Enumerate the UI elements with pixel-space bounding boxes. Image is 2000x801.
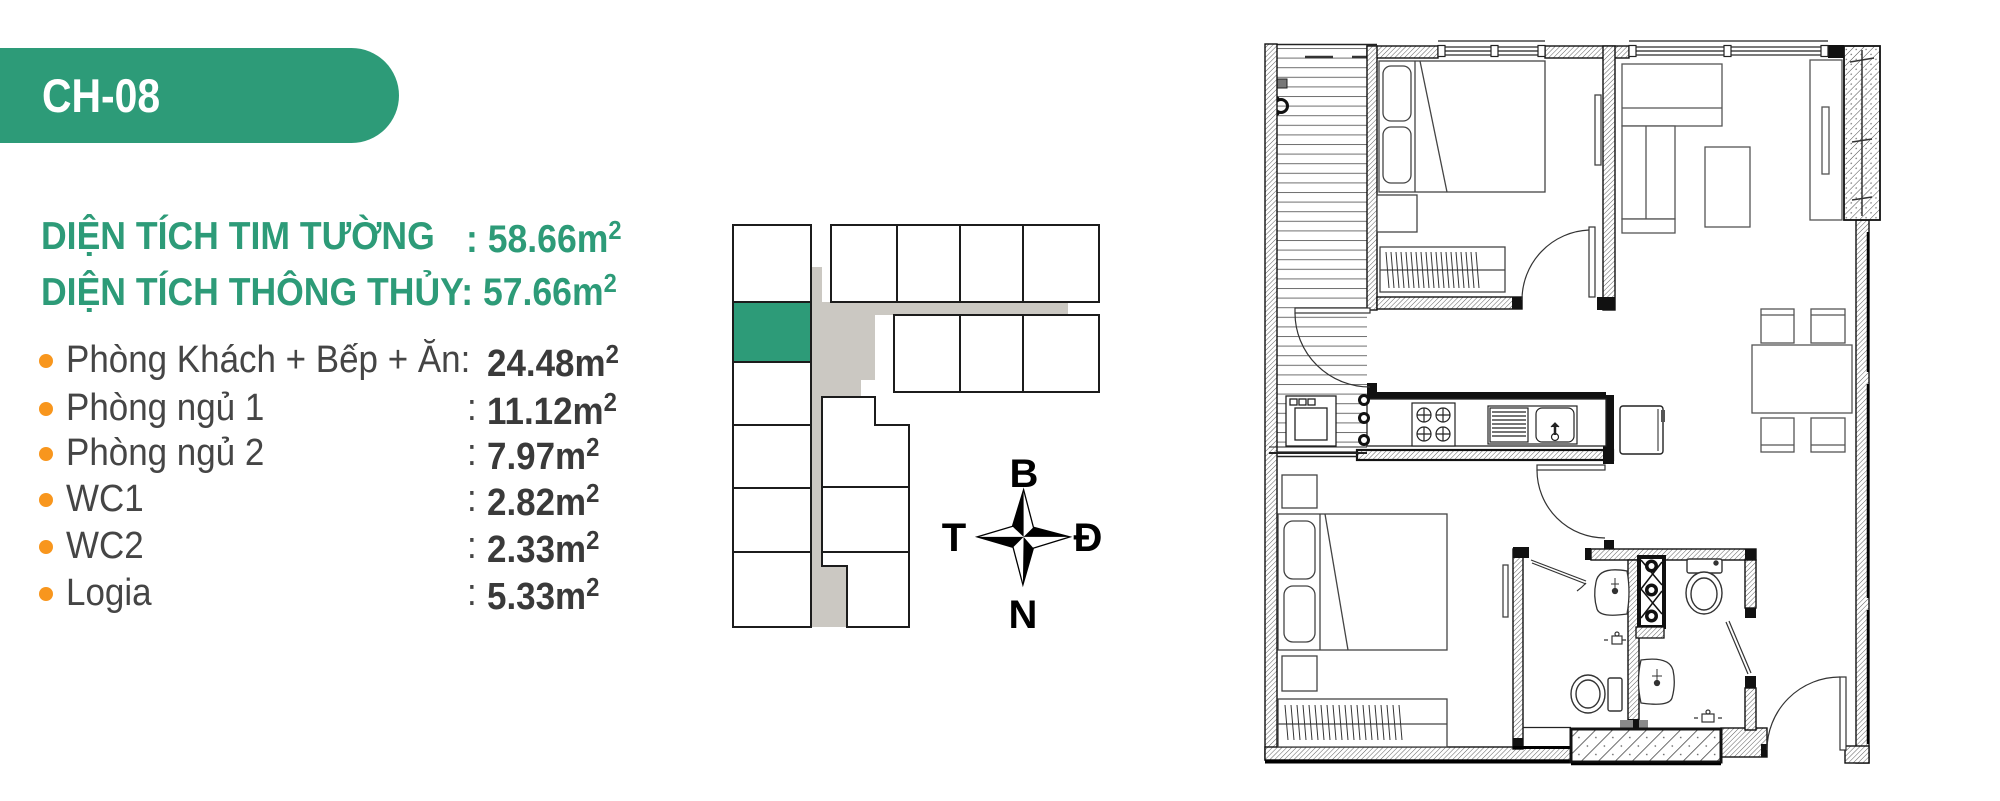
svg-text:T: T <box>942 516 966 560</box>
svg-text:Đ: Đ <box>1074 516 1103 560</box>
svg-text:B: B <box>1010 452 1039 496</box>
svg-text:N: N <box>1009 593 1038 637</box>
